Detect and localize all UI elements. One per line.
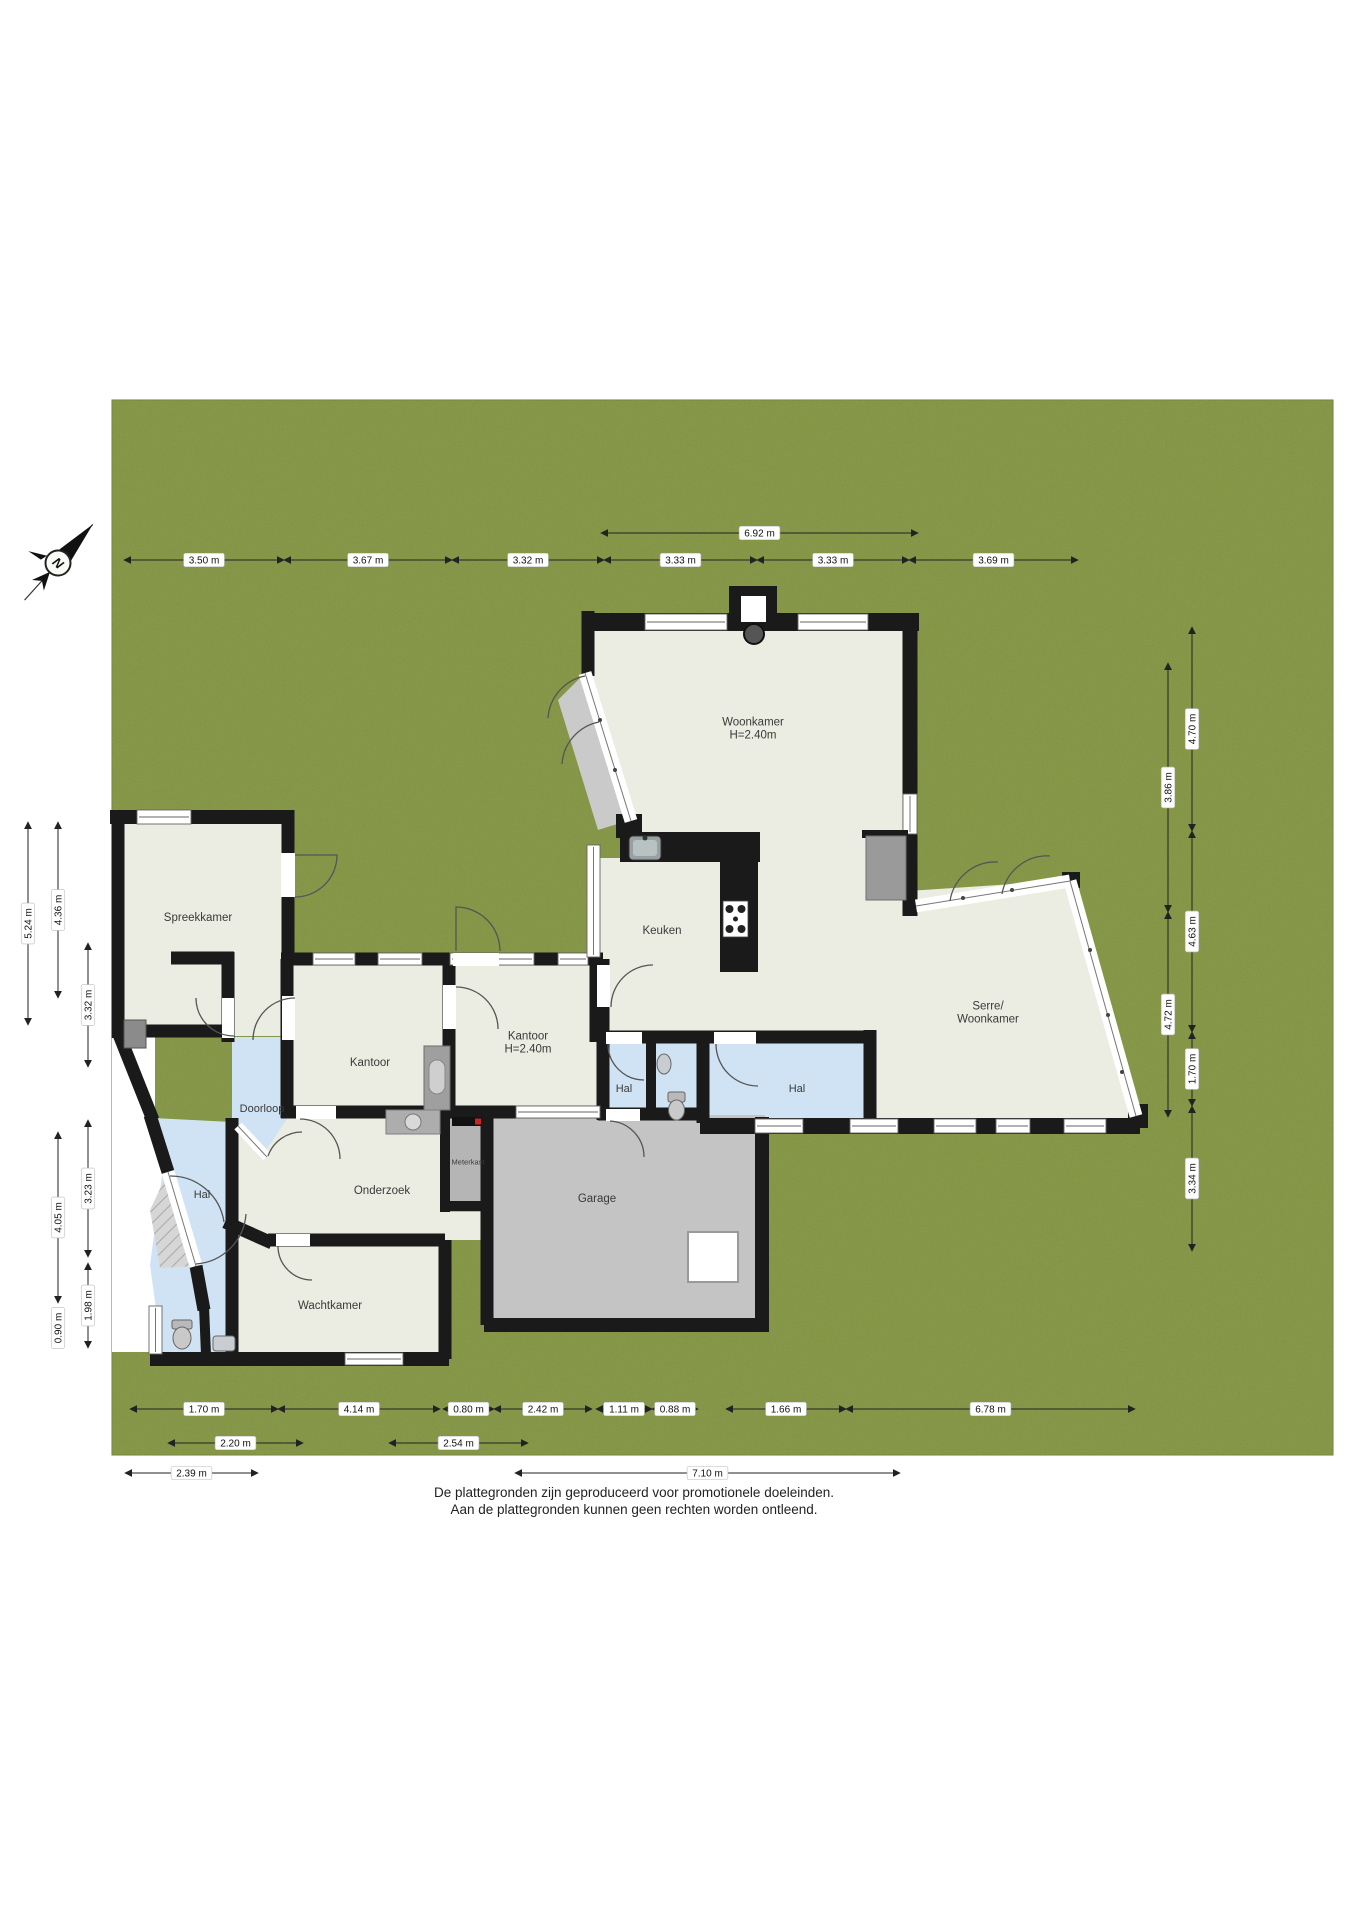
dimension: 0.90 m bbox=[51, 1308, 65, 1349]
wc-toilet-right bbox=[668, 1092, 685, 1120]
floor-wachtkamer bbox=[232, 1230, 445, 1352]
dimension: 1.11 m bbox=[596, 1402, 652, 1416]
wc-toilet-left bbox=[172, 1320, 192, 1349]
room-label: Hal bbox=[616, 1083, 633, 1095]
svg-text:3.69 m: 3.69 m bbox=[978, 556, 1009, 567]
svg-text:4.14 m: 4.14 m bbox=[344, 1405, 375, 1416]
svg-text:0.80 m: 0.80 m bbox=[453, 1405, 484, 1416]
svg-text:1.11 m: 1.11 m bbox=[609, 1405, 639, 1416]
spreekkamer-cabinet bbox=[124, 1020, 146, 1048]
room-label: Meterkast bbox=[452, 1158, 486, 1167]
wc-basin-left bbox=[213, 1336, 235, 1351]
svg-text:Onderzoek: Onderzoek bbox=[354, 1185, 411, 1197]
room-label: Spreekkamer bbox=[164, 912, 233, 924]
svg-text:Meterkast: Meterkast bbox=[452, 1158, 486, 1167]
floor-spreekkamer bbox=[116, 814, 290, 1036]
svg-text:3.32 m: 3.32 m bbox=[84, 990, 95, 1021]
svg-text:5.24 m: 5.24 m bbox=[24, 908, 35, 939]
svg-text:2.39 m: 2.39 m bbox=[176, 1469, 207, 1480]
svg-text:H=2.40m: H=2.40m bbox=[730, 730, 777, 742]
svg-text:Hal: Hal bbox=[789, 1083, 806, 1095]
floor-hal-midden bbox=[603, 1040, 649, 1118]
svg-text:1.98 m: 1.98 m bbox=[84, 1290, 95, 1321]
svg-text:4.05 m: 4.05 m bbox=[54, 1202, 65, 1233]
svg-text:0.88 m: 0.88 m bbox=[660, 1405, 691, 1416]
floorplan-page: WoonkamerH=2.40mKeukenSerre/WoonkamerSpr… bbox=[0, 0, 1358, 1920]
room-label: Hal bbox=[194, 1189, 211, 1201]
dimension: 1.98 m bbox=[81, 1263, 95, 1348]
dimension: 4.05 m bbox=[51, 1132, 65, 1303]
svg-text:Woonkamer: Woonkamer bbox=[722, 716, 784, 728]
svg-text:4.72 m: 4.72 m bbox=[1164, 999, 1175, 1030]
svg-text:Doorloop: Doorloop bbox=[240, 1103, 285, 1115]
room-label: KantoorH=2.40m bbox=[505, 1030, 552, 1055]
svg-text:4.63 m: 4.63 m bbox=[1188, 916, 1199, 947]
svg-text:3.32 m: 3.32 m bbox=[513, 556, 544, 567]
svg-text:Keuken: Keuken bbox=[642, 925, 681, 937]
kitchen-sink bbox=[629, 836, 661, 861]
room-label: Wachtkamer bbox=[298, 1300, 362, 1312]
svg-text:Hal: Hal bbox=[194, 1189, 211, 1201]
svg-text:Serre/: Serre/ bbox=[972, 1000, 1004, 1012]
dimension: 0.88 m bbox=[652, 1402, 698, 1416]
svg-text:3.50 m: 3.50 m bbox=[189, 556, 220, 567]
svg-text:Kantoor: Kantoor bbox=[350, 1057, 390, 1069]
chimney-block bbox=[862, 830, 908, 900]
svg-text:7.10 m: 7.10 m bbox=[692, 1469, 723, 1480]
svg-text:3.67 m: 3.67 m bbox=[353, 556, 384, 567]
svg-text:1.70 m: 1.70 m bbox=[1188, 1054, 1199, 1085]
meter-panel bbox=[452, 1117, 482, 1126]
svg-text:2.54 m: 2.54 m bbox=[443, 1439, 474, 1450]
svg-text:Woonkamer: Woonkamer bbox=[957, 1014, 1019, 1026]
footer-disclaimer-line2: Aan de plattegronden kunnen geen rechten… bbox=[450, 1502, 817, 1517]
svg-text:3.23 m: 3.23 m bbox=[84, 1173, 95, 1204]
stove bbox=[723, 901, 748, 937]
dimension: 5.24 m bbox=[21, 822, 35, 1025]
svg-text:Garage: Garage bbox=[578, 1193, 616, 1205]
svg-text:Wachtkamer: Wachtkamer bbox=[298, 1300, 362, 1312]
svg-text:0.90 m: 0.90 m bbox=[54, 1313, 65, 1344]
svg-text:3.34 m: 3.34 m bbox=[1188, 1163, 1199, 1194]
svg-text:6.78 m: 6.78 m bbox=[975, 1405, 1006, 1416]
svg-text:3.33 m: 3.33 m bbox=[818, 556, 849, 567]
footer-disclaimer-line1: De plattegronden zijn geproduceerd voor … bbox=[434, 1485, 834, 1500]
floor-garage bbox=[490, 1115, 765, 1325]
room-label: Kantoor bbox=[350, 1057, 390, 1069]
room-label: Hal bbox=[789, 1083, 806, 1095]
room-label: Garage bbox=[578, 1193, 616, 1205]
duct-cabinet bbox=[424, 1046, 450, 1110]
room-label: Onderzoek bbox=[354, 1185, 411, 1197]
svg-text:1.70 m: 1.70 m bbox=[189, 1405, 220, 1416]
garage-pit bbox=[688, 1232, 738, 1282]
svg-text:Kantoor: Kantoor bbox=[508, 1030, 548, 1042]
room-label: WoonkamerH=2.40m bbox=[722, 716, 784, 741]
room-label: Doorloop bbox=[240, 1103, 285, 1115]
compass-north-icon: N bbox=[2, 504, 102, 608]
svg-text:6.92 m: 6.92 m bbox=[744, 529, 775, 540]
dimension: 2.39 m bbox=[125, 1466, 258, 1480]
dimension: 4.36 m bbox=[51, 822, 65, 998]
svg-text:2.42 m: 2.42 m bbox=[528, 1405, 559, 1416]
svg-text:1.66 m: 1.66 m bbox=[771, 1405, 802, 1416]
wc-basin-right bbox=[657, 1054, 671, 1074]
room-label: Keuken bbox=[642, 925, 681, 937]
svg-text:3.33 m: 3.33 m bbox=[665, 556, 696, 567]
floorplan-image: WoonkamerH=2.40mKeukenSerre/WoonkamerSpr… bbox=[0, 0, 1358, 1920]
svg-text:4.36 m: 4.36 m bbox=[54, 895, 65, 926]
dimension: 7.10 m bbox=[515, 1466, 900, 1480]
onderzoek-counter bbox=[386, 1110, 440, 1134]
svg-text:H=2.40m: H=2.40m bbox=[505, 1044, 552, 1056]
dimension: 3.23 m bbox=[81, 1120, 95, 1257]
svg-text:2.20 m: 2.20 m bbox=[220, 1439, 251, 1450]
floor-hal-rechts bbox=[702, 1037, 874, 1119]
svg-text:Hal: Hal bbox=[616, 1083, 633, 1095]
dimension: 0.80 m bbox=[443, 1402, 494, 1416]
svg-text:3.86 m: 3.86 m bbox=[1164, 772, 1175, 803]
svg-text:4.70 m: 4.70 m bbox=[1188, 714, 1199, 745]
stove-pipe bbox=[744, 624, 764, 644]
dimension: 3.32 m bbox=[81, 943, 95, 1067]
svg-text:Spreekkamer: Spreekkamer bbox=[164, 912, 233, 924]
